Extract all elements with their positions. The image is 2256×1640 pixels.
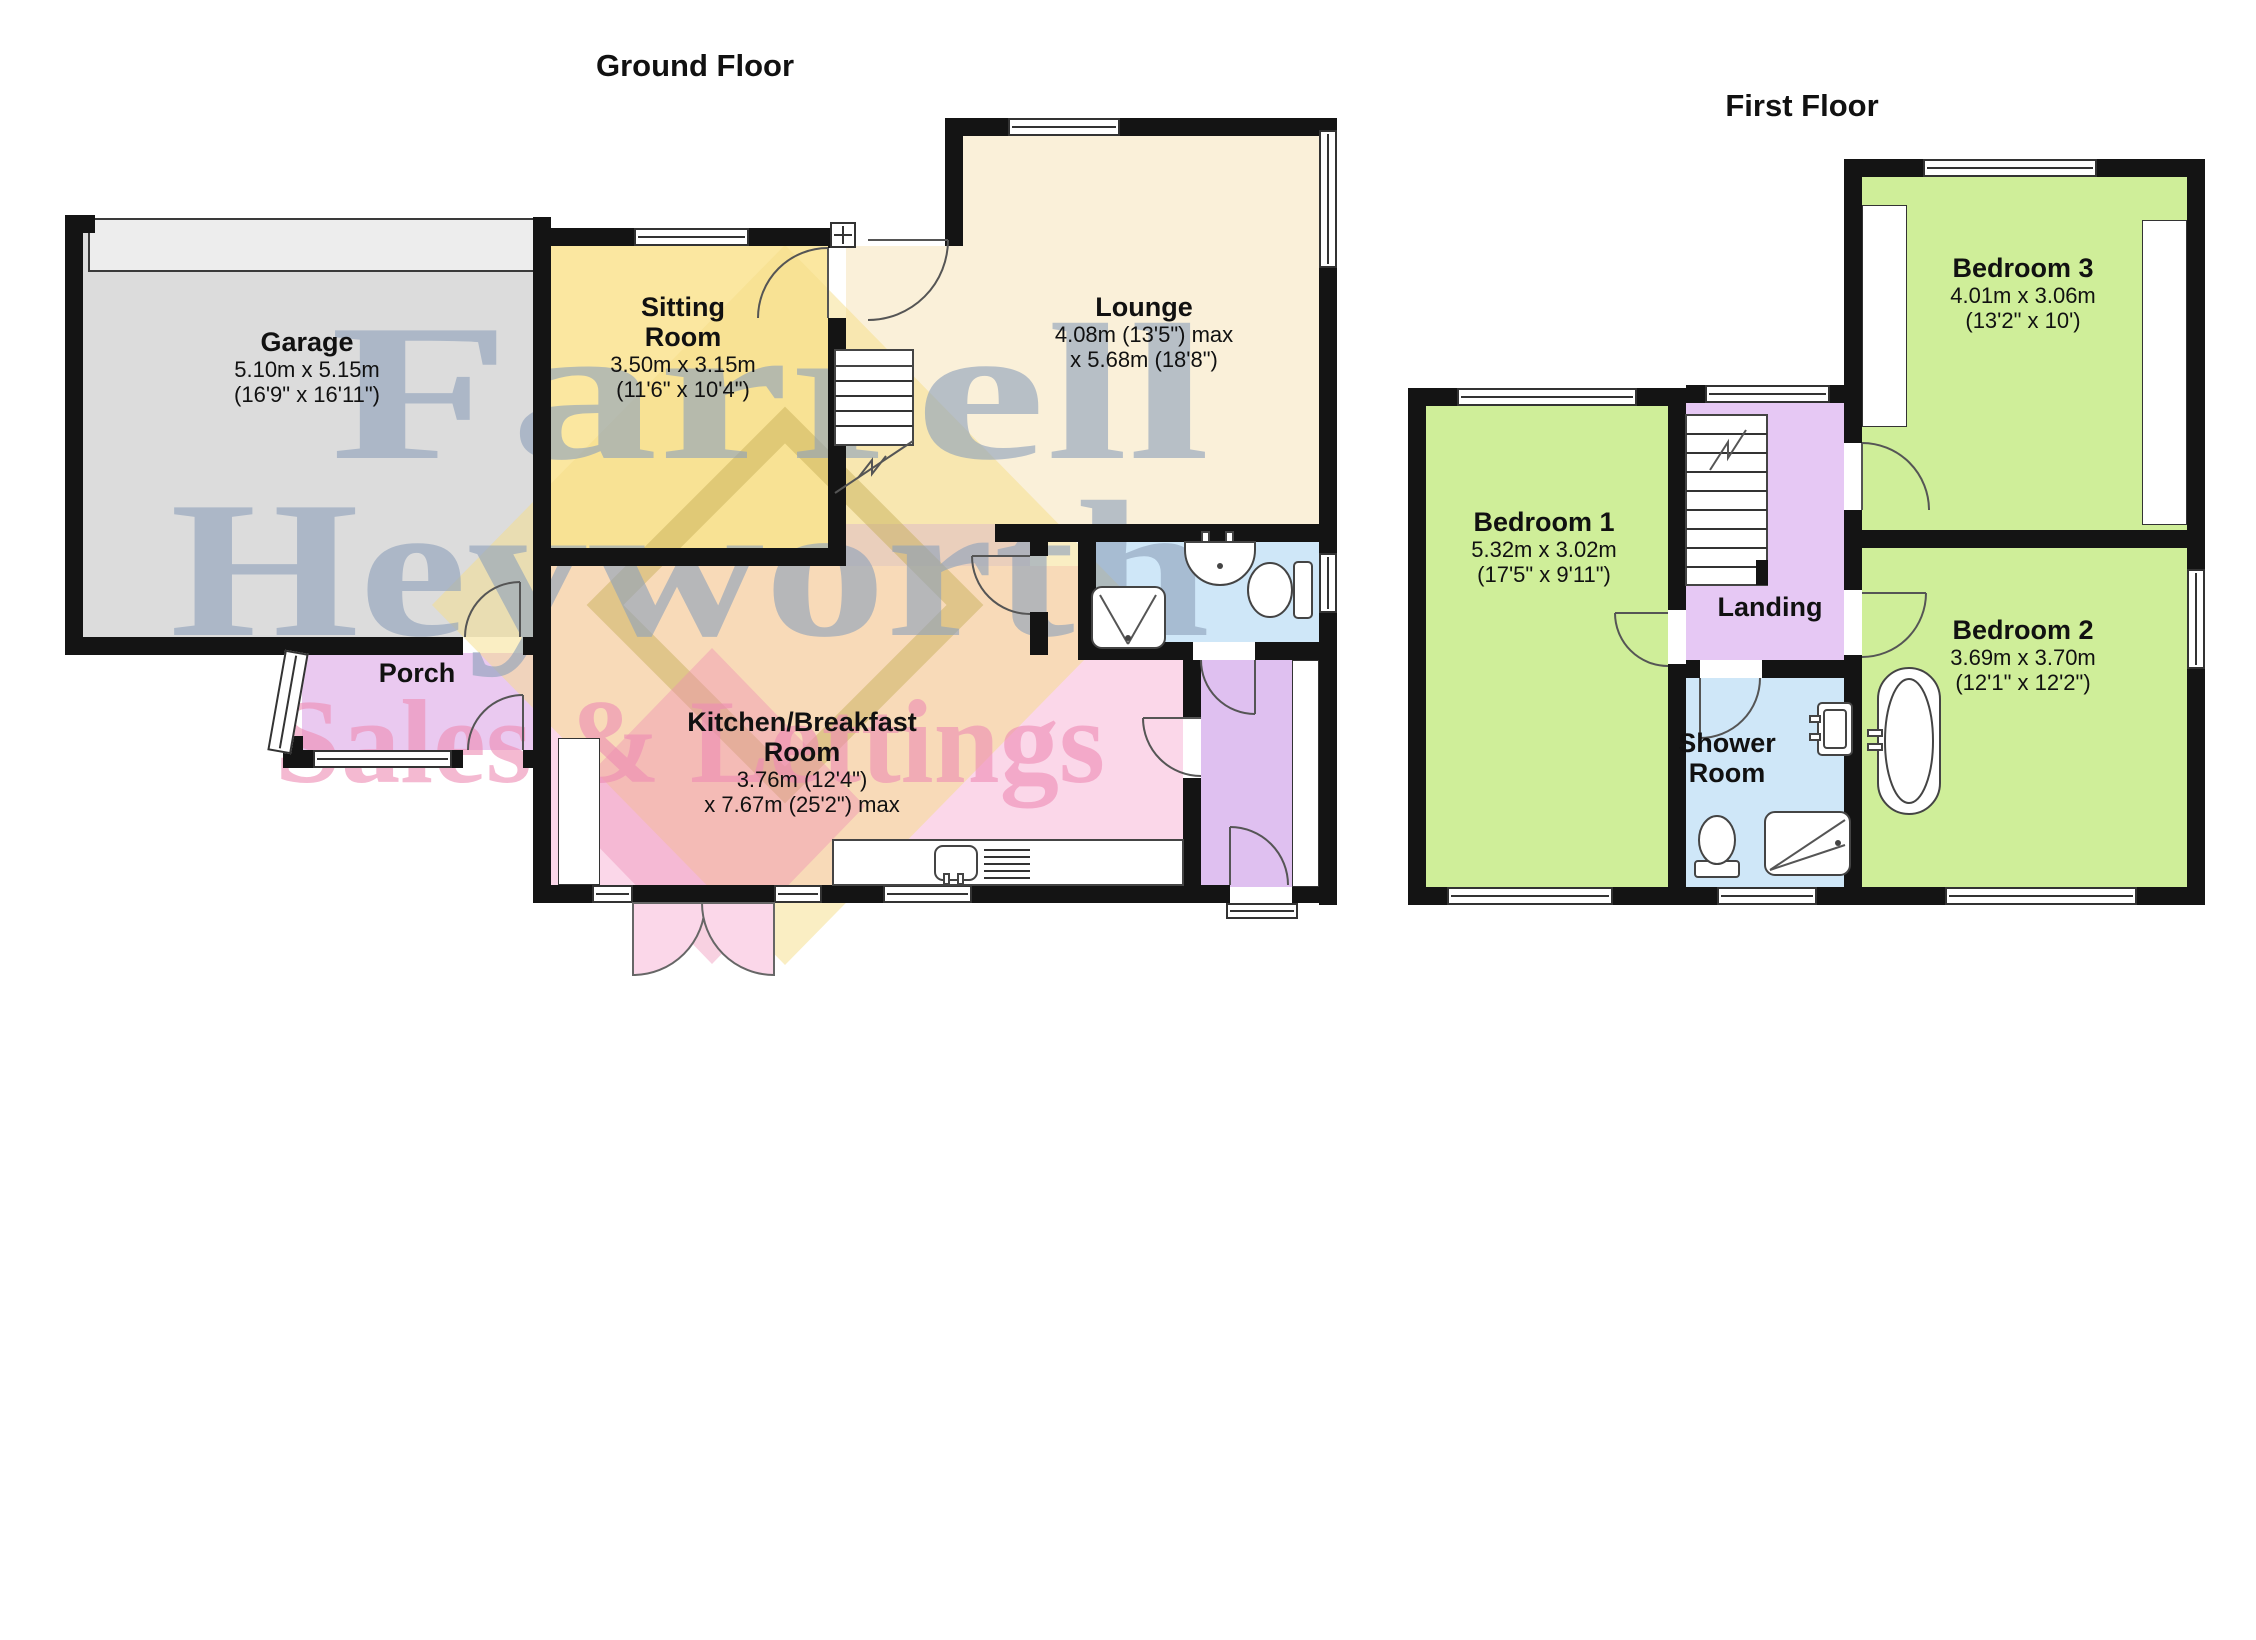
room-label-garage: Garage 5.10m x 5.15m (16'9" x 16'11") xyxy=(234,327,380,407)
room-label-bedroom1: Bedroom 1 5.32m x 3.02m (17'5" x 9'11") xyxy=(1471,507,1617,587)
sitting-room-door xyxy=(758,248,828,318)
sink-symbol xyxy=(1810,703,1852,755)
inner-hall-door xyxy=(972,556,1030,614)
toilet-symbol xyxy=(1248,562,1312,618)
room-label-sitting: Sitting Room 3.50m x 3.15m (11'6" x 10'4… xyxy=(610,292,756,402)
first-floor-title: First Floor xyxy=(1725,88,1878,124)
room-label-porch: Porch xyxy=(379,658,456,688)
kitchen-hall-door xyxy=(1143,718,1201,776)
french-doors xyxy=(633,903,774,975)
staircase-first-floor xyxy=(1686,415,1768,585)
floor-plan: Farrell Heyworth Sales & Lettings xyxy=(0,0,2256,1640)
room-label-lounge: Lounge 4.08m (13'5") max x 5.68m (18'8") xyxy=(1055,292,1233,372)
room-label-shower: Shower Room xyxy=(1678,728,1776,788)
shower-tray-symbol xyxy=(1092,587,1165,648)
room-label-landing: Landing xyxy=(1718,592,1823,622)
staircase xyxy=(835,350,913,493)
room-label-kitchen: Kitchen/Breakfast Room 3.76m (12'4") x 7… xyxy=(687,707,917,817)
entry-door xyxy=(1230,827,1288,885)
bedroom2-door xyxy=(1862,593,1926,657)
porch-door xyxy=(468,695,523,750)
sink-symbol xyxy=(1185,532,1255,585)
ground-floor-title: Ground Floor xyxy=(596,48,794,84)
room-label-bedroom2: Bedroom 2 3.69m x 3.70m (12'1" x 12'2") xyxy=(1950,615,2096,695)
garage-door-internal xyxy=(465,582,520,637)
kitchen-counter xyxy=(833,840,1183,885)
bedroom3-door xyxy=(1862,443,1929,510)
toilet-symbol xyxy=(1695,816,1739,877)
bedroom1-door xyxy=(1615,613,1668,666)
front-door xyxy=(868,240,948,320)
room-label-bedroom3: Bedroom 3 4.01m x 3.06m (13'2" x 10') xyxy=(1950,253,2096,333)
bathtub-symbol xyxy=(1868,668,1940,814)
shower-tray-symbol xyxy=(1765,812,1850,875)
bathroom-door xyxy=(1201,660,1255,714)
